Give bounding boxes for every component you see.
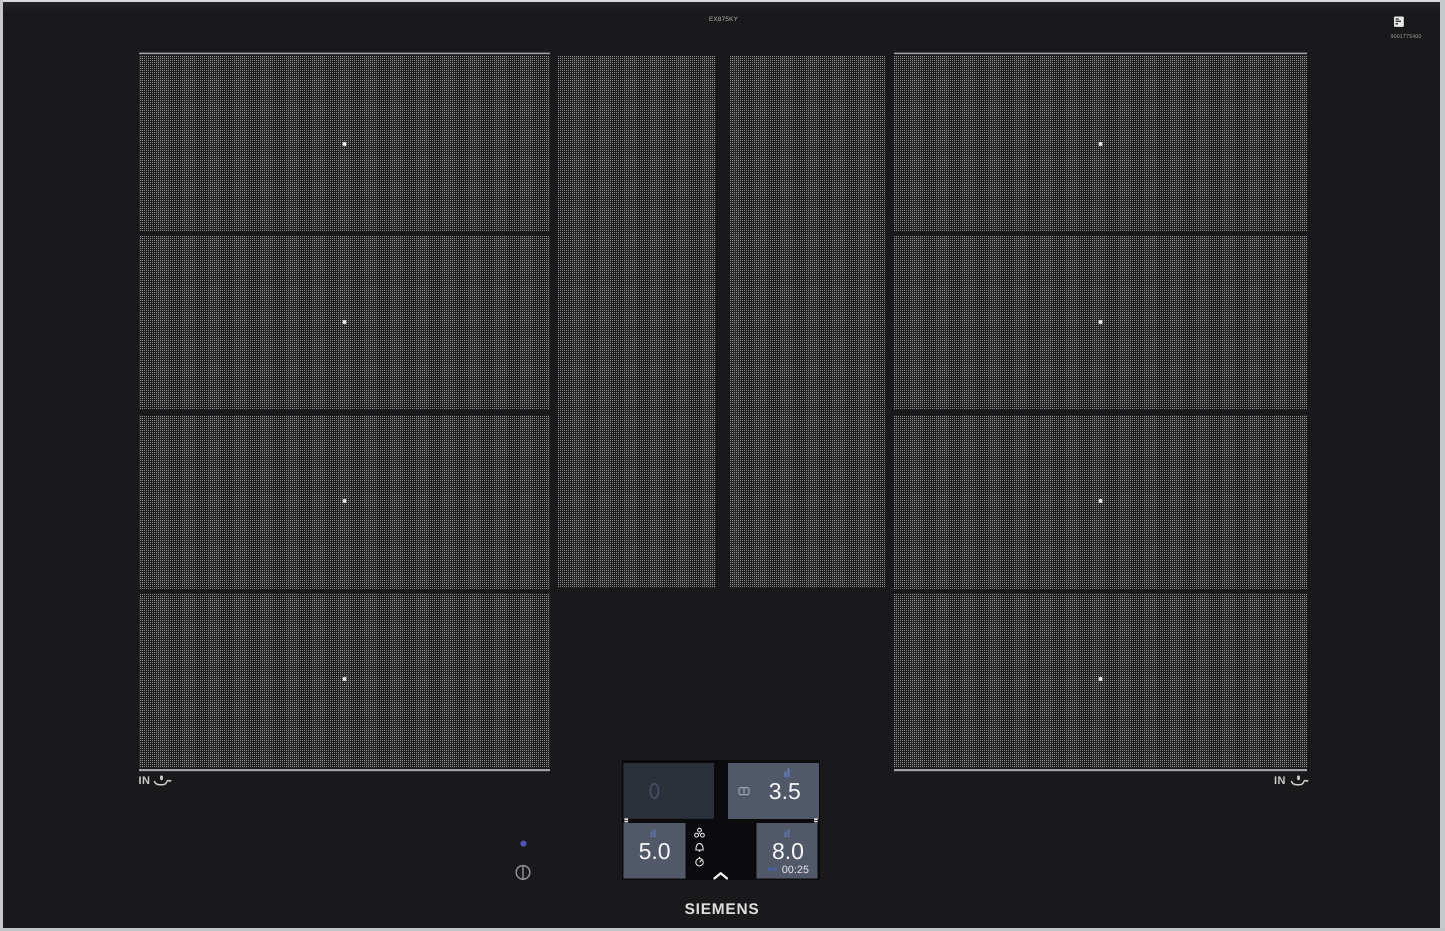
- svg-text:8.0: 8.0: [772, 838, 804, 864]
- svg-text:EX875KY: EX875KY: [709, 16, 739, 23]
- svg-text:IN: IN: [139, 775, 151, 787]
- svg-text:9001775400: 9001775400: [1391, 34, 1422, 40]
- svg-text:SIEMENS: SIEMENS: [685, 901, 760, 918]
- svg-text:IN: IN: [1274, 775, 1286, 787]
- svg-text:3.5: 3.5: [769, 778, 801, 804]
- svg-text:5.0: 5.0: [639, 838, 671, 864]
- svg-text:00:25: 00:25: [782, 864, 809, 876]
